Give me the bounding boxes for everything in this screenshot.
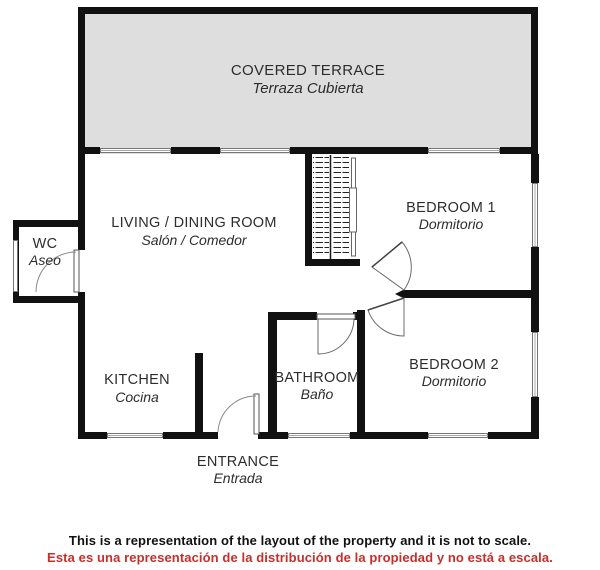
floorplan-svg: COVERED TERRACE Terraza Cubierta LIVING … [0, 0, 600, 570]
terrace-label: COVERED TERRACE [231, 62, 385, 79]
floorplan-image: COVERED TERRACE Terraza Cubierta LIVING … [0, 0, 600, 570]
wall-segment [78, 154, 85, 250]
stair-treads [332, 156, 349, 257]
bathroom-label: BATHROOM [274, 370, 359, 386]
wall-segment [78, 147, 100, 154]
door-arc [318, 318, 354, 354]
wall-segment [531, 247, 539, 332]
bedroom1-sublabel: Dormitorio [419, 216, 484, 232]
wall-segment [78, 432, 107, 439]
disclaimer-spanish: Esta es una representación de la distrib… [47, 550, 553, 565]
wall-segment [195, 353, 203, 432]
door-leaf [317, 314, 355, 319]
disclaimer: This is a representation of the layout o… [47, 533, 553, 565]
window [14, 241, 18, 292]
kitchen-sublabel: Cocina [115, 389, 159, 405]
wall-segment [258, 432, 288, 439]
wall-segment [78, 7, 85, 154]
entrance-label: ENTRANCE [197, 454, 279, 470]
wall-segment [350, 432, 428, 439]
disclaimer-english: This is a representation of the layout o… [69, 533, 531, 548]
wall-segment [531, 7, 538, 154]
wall-segment [531, 397, 539, 439]
wall-segment [13, 296, 85, 303]
stair-treads [313, 156, 329, 257]
wall-segment [305, 154, 312, 266]
wall-segment [163, 432, 218, 439]
wall-segment [171, 147, 220, 154]
wc-sublabel: Aseo [28, 252, 61, 268]
wall-segment [290, 147, 428, 154]
bedroom2-label: BEDROOM 2 [409, 357, 499, 373]
door-arc [218, 396, 256, 432]
door-leaf [74, 250, 79, 292]
door-leaf [254, 394, 259, 434]
staircase [305, 154, 360, 266]
wall-segment [531, 154, 539, 183]
kitchen-label: KITCHEN [104, 372, 170, 388]
wall-segment [305, 259, 360, 266]
entrance-sublabel: Entrada [213, 470, 262, 486]
bedroom1-label: BEDROOM 1 [406, 200, 496, 216]
wall-segment [78, 7, 538, 14]
bathroom-sublabel: Baño [301, 386, 334, 402]
bedroom2-sublabel: Dormitorio [422, 373, 487, 389]
door-arc [372, 242, 411, 290]
stair-glass-handle [350, 188, 357, 232]
wall-segment [403, 290, 539, 298]
terrace-sublabel: Terraza Cubierta [252, 80, 363, 97]
living-label: LIVING / DINING ROOM [111, 215, 277, 231]
wc-label: WC [33, 236, 58, 252]
living-sublabel: Salón / Comedor [141, 232, 247, 248]
wall-segment [13, 220, 85, 227]
wall-segment [78, 292, 85, 439]
wall-segment [500, 147, 538, 154]
doors [218, 242, 411, 434]
wall-tip [395, 290, 403, 298]
